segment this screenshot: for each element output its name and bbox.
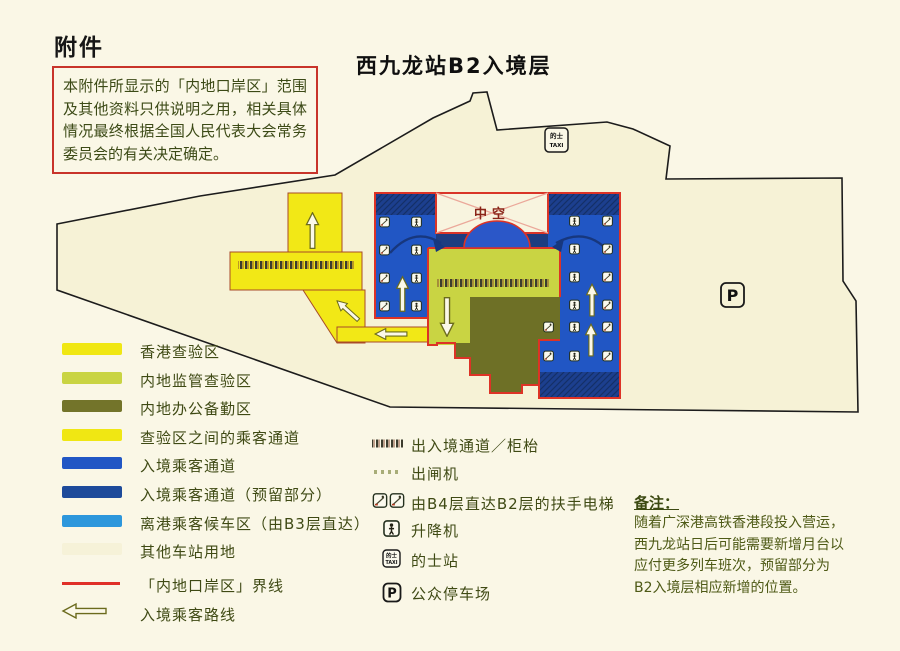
attachment-heading: 附件 [54, 28, 104, 62]
zone-label: 其他车站用地 [140, 541, 236, 562]
zone-label: 内地监管查验区 [140, 370, 252, 391]
lift-icon [570, 322, 580, 332]
parking-sign-letter: P [727, 286, 739, 305]
lift-icon [412, 217, 422, 227]
page-title: 西九龙站B2入境层 [356, 50, 552, 80]
hk-yellow-horizontal [230, 252, 362, 290]
taxi-sign: 的士 TAXI [545, 128, 568, 152]
escalator-icon [603, 322, 613, 332]
lift-icon [570, 351, 580, 361]
lift-icon [412, 273, 422, 283]
lift-icon [570, 216, 580, 226]
exit-gate-icon [371, 468, 405, 476]
symbol-label: 出入境通道／柜枱 [411, 435, 539, 456]
escalator-icon [603, 272, 613, 282]
disclaimer-box: 本附件所显示的「内地口岸区」范围及其他资料只供说明之用，相关具体情况最终根据全国… [52, 66, 318, 174]
zone-swatch [62, 486, 122, 498]
parking-icon: P [382, 582, 403, 603]
symbol-label: 的士站 [411, 550, 459, 571]
symbol-label: 由B4层直达B2层的扶手电梯 [411, 493, 615, 514]
void-label: 中空 [474, 206, 510, 222]
zone-swatch [62, 515, 122, 527]
svg-text:TAXI: TAXI [385, 560, 397, 566]
note-line: 西九龙站日后可能需要新增月台以 [634, 535, 890, 557]
counter-strip-mainland [437, 279, 550, 287]
reserved-strip-bottom [539, 372, 620, 398]
reserved-strip-topright [548, 193, 620, 215]
zone-label: 内地办公备勤区 [140, 398, 252, 419]
lift-icon [412, 301, 422, 311]
note-line: 应付更多列车班次，预留部分为 [634, 556, 890, 578]
escalator-icon [380, 301, 390, 311]
page: { "header": { "attachment_label": "附件", … [0, 0, 900, 651]
zone-label: 「内地口岸区」界线 [140, 575, 284, 596]
taxi-icon: 的士 TAXI [382, 549, 402, 569]
escalator-icon [603, 300, 613, 310]
counter-hatch-icon [371, 439, 405, 449]
lift-icon [570, 272, 580, 282]
escalator-icon [544, 351, 554, 361]
taxi-sign-en: TAXI [550, 143, 564, 149]
lift-icon [382, 519, 401, 538]
zone-swatch [62, 372, 122, 384]
zone-label: 离港乘客候车区（由B3层直达） [140, 513, 370, 534]
lift-icon [570, 300, 580, 310]
escalator-icon [603, 351, 613, 361]
zone-label: 入境乘客路线 [140, 604, 236, 625]
zone-swatch [62, 429, 122, 441]
svg-text:P: P [387, 587, 397, 602]
note-line: B2入境层相应新增的位置。 [634, 578, 890, 600]
escalator-icon [380, 273, 390, 283]
boundary-line-swatch [62, 582, 120, 585]
counter-strip-hk [238, 261, 355, 269]
escalator-icon [603, 244, 613, 254]
symbol-label: 公众停车场 [411, 583, 491, 604]
escalator-icon [371, 492, 407, 509]
symbol-label: 升降机 [411, 520, 459, 541]
zone-swatch [62, 543, 122, 555]
zone-swatch [62, 400, 122, 412]
zone-label: 查验区之间的乘客通道 [140, 427, 300, 448]
lift-icon [412, 245, 422, 255]
taxi-sign-cn: 的士 [550, 131, 564, 140]
lift-icon [570, 244, 580, 254]
svg-text:的士: 的士 [386, 552, 398, 560]
note-block: 备注： 随着广深港高铁香港段投入营运， 西九龙站日后可能需要新增月台以 应付更多… [634, 492, 890, 599]
zone-swatch [62, 457, 122, 469]
note-heading: 备注： [634, 492, 890, 513]
legend-route-arrow [63, 604, 106, 618]
zone-swatch [62, 343, 122, 355]
zone-label: 入境乘客通道 [140, 455, 236, 476]
escalator-icon [380, 217, 390, 227]
escalator-icon [380, 245, 390, 255]
reserved-strip-topleft [375, 193, 436, 215]
symbol-label: 出闸机 [411, 463, 459, 484]
note-line: 随着广深港高铁香港段投入营运， [634, 513, 890, 535]
zone-label: 入境乘客通道（预留部分） [140, 484, 332, 505]
escalator-icon [544, 322, 554, 332]
escalator-icon [603, 216, 613, 226]
zone-label: 香港查验区 [140, 341, 220, 362]
